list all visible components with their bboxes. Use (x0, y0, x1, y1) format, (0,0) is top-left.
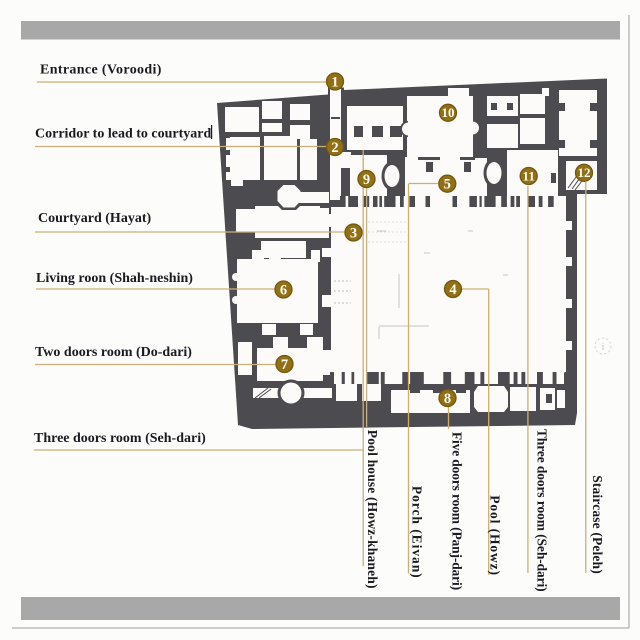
svg-text:1: 1 (331, 74, 338, 90)
svg-text:3: 3 (350, 225, 357, 241)
svg-text:Living roon (Shah-neshin): Living roon (Shah-neshin) (36, 271, 193, 286)
svg-text:12: 12 (578, 165, 591, 180)
svg-text:9: 9 (363, 172, 370, 188)
svg-text:11: 11 (523, 168, 535, 183)
svg-text:5: 5 (444, 177, 451, 193)
svg-text:Courtyard (Hayat): Courtyard (Hayat) (38, 211, 151, 226)
svg-text:2: 2 (331, 140, 338, 156)
svg-text:Three doors room (Seh-dari): Three doors room (Seh-dari) (34, 431, 206, 446)
svg-text:i: i (602, 342, 605, 353)
svg-text:6: 6 (280, 282, 287, 298)
svg-text:Five doors room (Panj-dari): Five doors room (Panj-dari) (450, 432, 465, 590)
svg-text:10: 10 (442, 105, 455, 120)
svg-text:Pool house (Howz-khaneh): Pool house (Howz-khaneh) (365, 430, 380, 589)
svg-text:Pool (Howz): Pool (Howz) (488, 495, 503, 576)
svg-text:Three doors room (Seh-dari): Three doors room (Seh-dari) (535, 429, 550, 592)
svg-text:4: 4 (449, 282, 456, 298)
svg-text:Two doors room (Do-dari): Two doors room (Do-dari) (35, 345, 192, 360)
svg-text:Staircase (Peleh): Staircase (Peleh) (590, 475, 605, 574)
svg-text:Porch (Eivan): Porch (Eivan) (410, 486, 425, 579)
svg-text:8: 8 (444, 391, 451, 407)
svg-text:7: 7 (281, 357, 288, 373)
svg-text:Entrance (Voroodi): Entrance (Voroodi) (40, 63, 162, 78)
svg-text:Corridor to lead to courtyard: Corridor to lead to courtyard (35, 127, 211, 142)
